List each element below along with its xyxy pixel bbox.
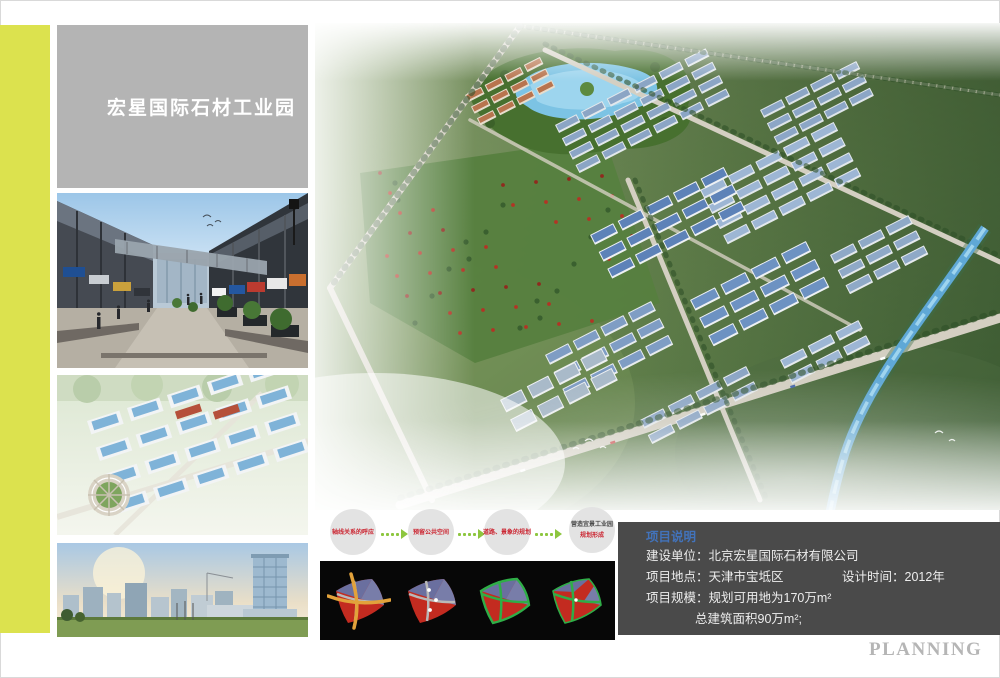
info-location: 项目地点：天津市宝坻区 <box>646 570 784 584</box>
flow-step-4-sublabel: 规划形成 <box>580 532 604 539</box>
flow-step-3: 道路、景象的规划 <box>484 509 530 555</box>
info-builder: 建设单位：北京宏星国际石材有限公司 <box>646 546 1000 567</box>
flow-step-1-label: 轴线关系的呼应 <box>332 529 374 536</box>
photo-aerial-industrial-park <box>57 375 308 535</box>
presentation-board: 宏星国际石材工业园 <box>0 0 1000 678</box>
concept-diagram-box <box>320 561 615 640</box>
flow-step-2: 预留公共空间 <box>408 509 454 555</box>
info-design-time: 设计时间：2012年 <box>842 567 945 588</box>
diagram-nodes <box>399 572 463 630</box>
info-title: 项目说明 <box>646 529 1000 546</box>
info-total-area: 总建筑面积90万m²; <box>695 612 802 626</box>
photo-building-rendering <box>57 543 308 637</box>
flow-arrow-1 <box>381 529 408 539</box>
info-scale: 项目规模：规划可用地为170万m² <box>646 588 1000 609</box>
flow-step-1: 轴线关系的呼应 <box>330 509 376 555</box>
diagram-green-cross <box>544 572 608 630</box>
flow-step-4-label: 营造宜景工业园 <box>571 521 613 528</box>
flow-step-4: 营造宜景工业园 规划形成 <box>569 507 615 553</box>
flow-arrow-3 <box>535 529 562 539</box>
masterplan-render <box>315 23 1000 510</box>
accent-stripe <box>0 25 50 633</box>
flow-step-2-label: 预留公共空间 <box>413 529 449 536</box>
info-location-row: 项目地点：天津市宝坻区 设计时间：2012年 <box>646 567 1000 588</box>
planning-label: PLANNING <box>869 639 982 661</box>
flow-arrow-2 <box>458 529 485 539</box>
flow-step-3-label: 道路、景象的规划 <box>483 529 531 536</box>
page-title: 宏星国际石材工业园 <box>57 93 296 120</box>
project-info-panel: 项目说明 建设单位：北京宏星国际石材有限公司 项目地点：天津市宝坻区 设计时间：… <box>618 522 1000 635</box>
diagram-axes <box>327 572 391 630</box>
photo-street-view <box>57 193 308 368</box>
diagram-green-ring <box>472 572 536 630</box>
title-box: 宏星国际石材工业园 <box>57 25 308 188</box>
